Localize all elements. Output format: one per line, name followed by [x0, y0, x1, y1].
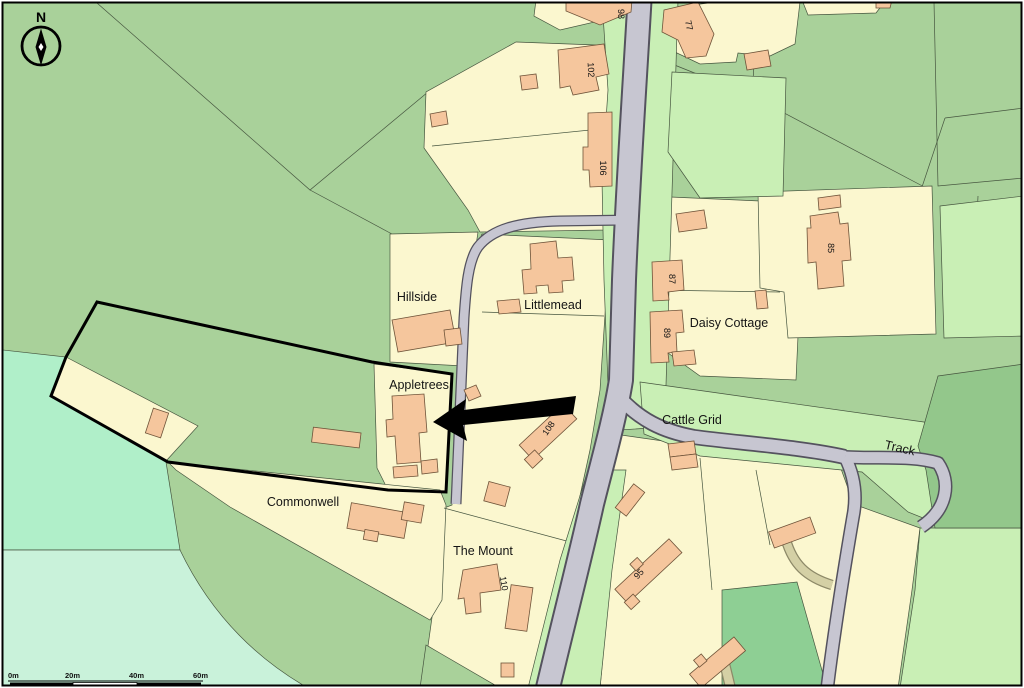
label-appletrees: Appletrees — [389, 378, 449, 392]
label-commonwell: Commonwell — [267, 495, 339, 509]
building-shed-west — [430, 111, 448, 127]
building-littlemead-garage — [497, 299, 521, 314]
label-littlemead: Littlemead — [524, 298, 582, 312]
building-85-annex — [818, 195, 841, 210]
building-pair-lower — [670, 454, 698, 470]
building-small-bottom — [501, 663, 514, 677]
building-hillside-wing — [444, 328, 462, 346]
building-appletrees-shed2 — [421, 459, 438, 474]
site-location-plan: Hillside Littlemead Daisy Cottage Applet… — [0, 0, 1024, 688]
house-number-106: 106 — [598, 160, 608, 175]
building-shed-102 — [520, 74, 538, 90]
scale-tick-20m: 20m — [65, 671, 80, 680]
label-daisy-cottage: Daisy Cottage — [690, 316, 769, 330]
scale-tick-40m: 40m — [129, 671, 144, 680]
label-cattle-grid: Cattle Grid — [662, 413, 722, 427]
building-89-annex — [672, 350, 696, 366]
house-number-87: 87 — [667, 274, 677, 284]
building-daisy-shed — [755, 290, 768, 309]
compass-north-label: N — [36, 9, 46, 25]
building-top-edge — [876, 0, 892, 8]
label-hillside: Hillside — [397, 290, 437, 304]
house-number-102: 102 — [586, 62, 597, 78]
label-the-mount: The Mount — [453, 544, 513, 558]
house-number-85: 85 — [826, 243, 836, 253]
house-number-77: 77 — [683, 19, 695, 31]
scale-tick-60m: 60m — [193, 671, 208, 680]
scale-tick-0m: 0m — [8, 671, 19, 680]
house-number-98: 98 — [616, 9, 626, 19]
house-number-89: 89 — [662, 328, 672, 338]
building-daisy-outbuilding — [676, 210, 707, 232]
building-outbuilding-ne — [744, 50, 771, 70]
building-appletrees-shed1 — [393, 465, 418, 478]
map-canvas: Hillside Littlemead Daisy Cottage Applet… — [0, 0, 1024, 688]
